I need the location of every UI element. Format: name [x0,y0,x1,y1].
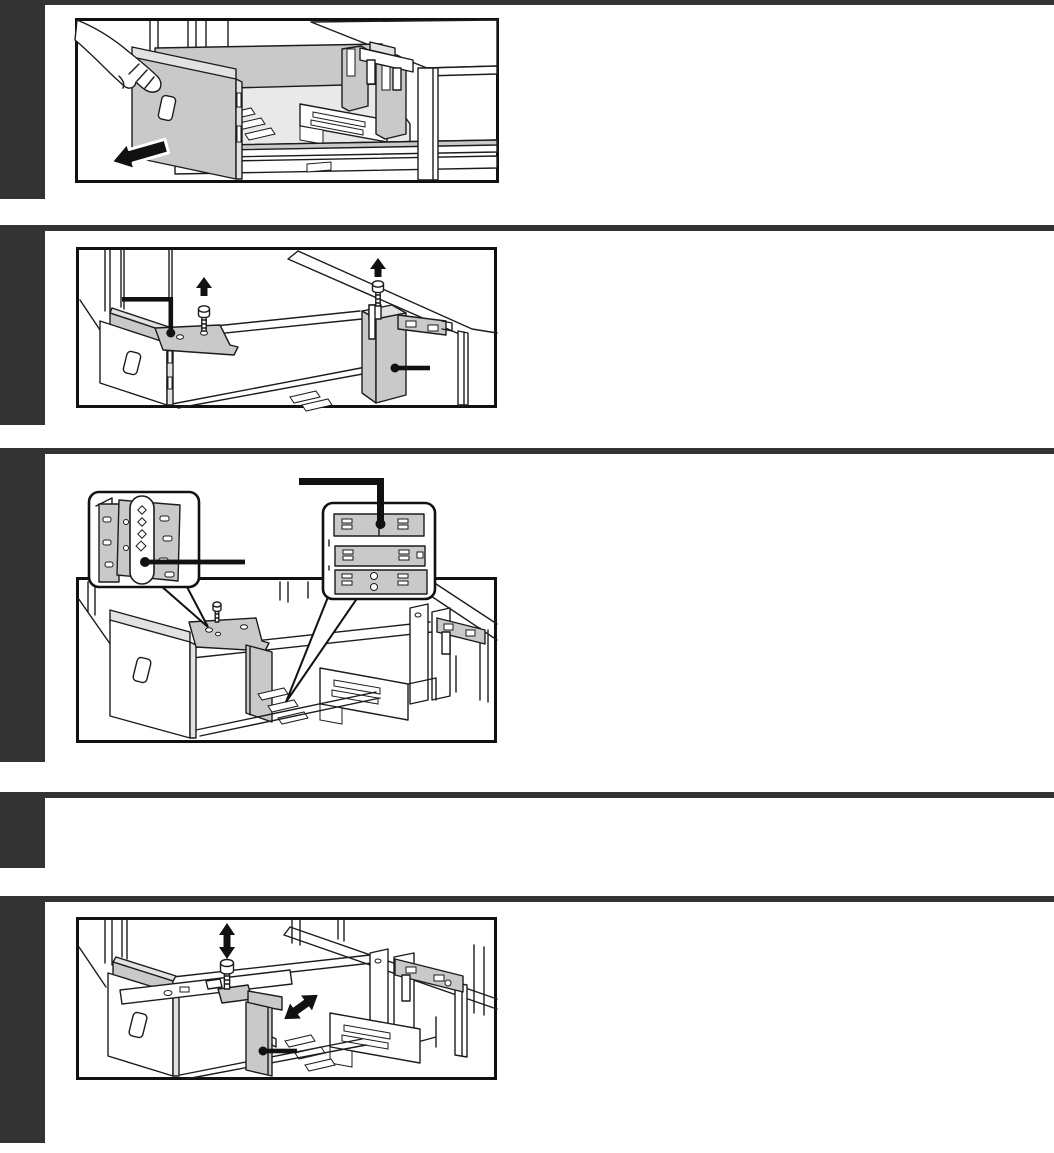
magnifier-bubble-icon [89,492,199,587]
section-rule-2 [0,225,1054,231]
manual-page [0,0,1054,1153]
figure-remove-guide-screws [76,247,497,408]
table-leg [418,68,438,180]
step-marker-bar-5 [0,896,45,1143]
section-rule-1 [0,0,1054,5]
figure-adjust-guide-position [76,917,497,1080]
tray-front-panel [108,957,179,1076]
figure-pull-out-tray [75,18,499,183]
section-rule-4 [0,792,1054,798]
step-marker-bar-1 [0,0,45,199]
step-marker-bar-4 [0,792,45,868]
step-marker-bar-2 [0,225,45,425]
figure-guide-hole-positions [76,462,497,745]
section-rule-5 [0,896,1054,902]
step-marker-bar-3 [0,448,45,762]
section-rule-3 [0,448,1054,454]
